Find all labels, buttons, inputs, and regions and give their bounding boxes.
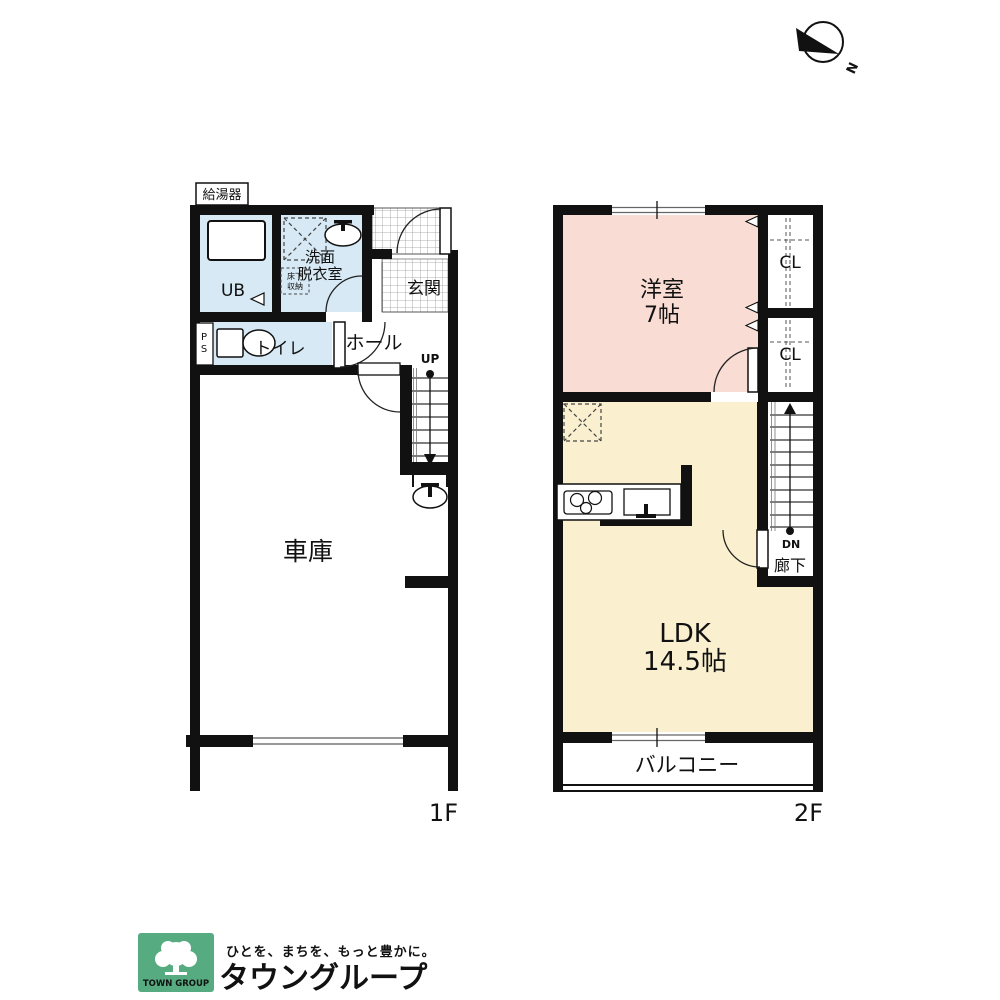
garage-door-arc (358, 370, 400, 412)
ps-label-1: P (201, 332, 207, 343)
ps-label-2: S (201, 344, 207, 355)
closet-upper-label: CL (779, 253, 801, 273)
floor2-label: 2F (794, 799, 823, 827)
porch-tile-area (372, 208, 440, 254)
footer-tagline: ひとを、まちを、もっと豊かに。 (226, 944, 436, 960)
toilet-label: トイレ (255, 339, 306, 359)
footer-company-name: タウングループ (219, 961, 428, 996)
outdoor-faucet-icon (413, 475, 447, 508)
western-room-label-1: 洋室 (640, 278, 684, 303)
toilet-door-leaf (334, 322, 345, 368)
corridor-door-leaf (757, 530, 768, 568)
compass-north-label: N (842, 59, 860, 75)
entrance-label: 玄関 (407, 279, 441, 299)
floorplan-drawing: N 給湯器 (0, 0, 1000, 1000)
floor1-plan: 給湯器 UB 洗面 脱衣室 床下 収納 玄関 (186, 183, 458, 827)
closet-lower-label: CL (779, 345, 801, 365)
compass: N (796, 22, 860, 76)
balcony-railing (553, 785, 823, 791)
ldk-label-1: LDK (659, 619, 712, 649)
underfloor-storage-label-1: 床下 (287, 271, 303, 281)
ub-label: UB (221, 281, 245, 301)
stairs-up-label: UP (421, 352, 440, 366)
kitchen-counter (557, 484, 681, 526)
ldk-label-2: 14.5帖 (643, 647, 727, 677)
garage-label: 車庫 (283, 537, 333, 566)
western-room-door-leaf (748, 348, 758, 392)
footer-logo: TOWN GROUP ひとを、まちを、もっと豊かに。 タウングループ (138, 933, 436, 996)
entrance-door-leaf (440, 208, 451, 254)
north-arrow-icon (796, 28, 839, 54)
corridor-label: 廊下 (774, 556, 806, 575)
floor2-plan: 洋室 7帖 CL CL (553, 201, 823, 827)
washroom-label-1: 洗面 (305, 248, 335, 266)
stairs-2f: DN (770, 402, 813, 551)
bathtub-icon (208, 221, 265, 260)
underfloor-storage-label-2: 収納 (287, 281, 303, 291)
water-heater-box: 給湯器 (196, 183, 248, 205)
logo-square-text: TOWN GROUP (143, 979, 209, 989)
stairs-down-label: DN (782, 538, 800, 551)
floor1-label: 1F (429, 799, 458, 827)
water-heater-label: 給湯器 (202, 188, 241, 203)
hall-label: ホール (345, 332, 402, 354)
floorplan-page: N 給湯器 (0, 0, 1000, 1000)
stairs-1f: UP (412, 352, 448, 466)
western-room-label-2: 7帖 (644, 303, 680, 328)
garage-door-opening (253, 738, 403, 744)
garage-door-leaf (358, 363, 400, 375)
balcony-label: バルコニー (635, 753, 740, 777)
pipe-space: P S (196, 323, 213, 365)
